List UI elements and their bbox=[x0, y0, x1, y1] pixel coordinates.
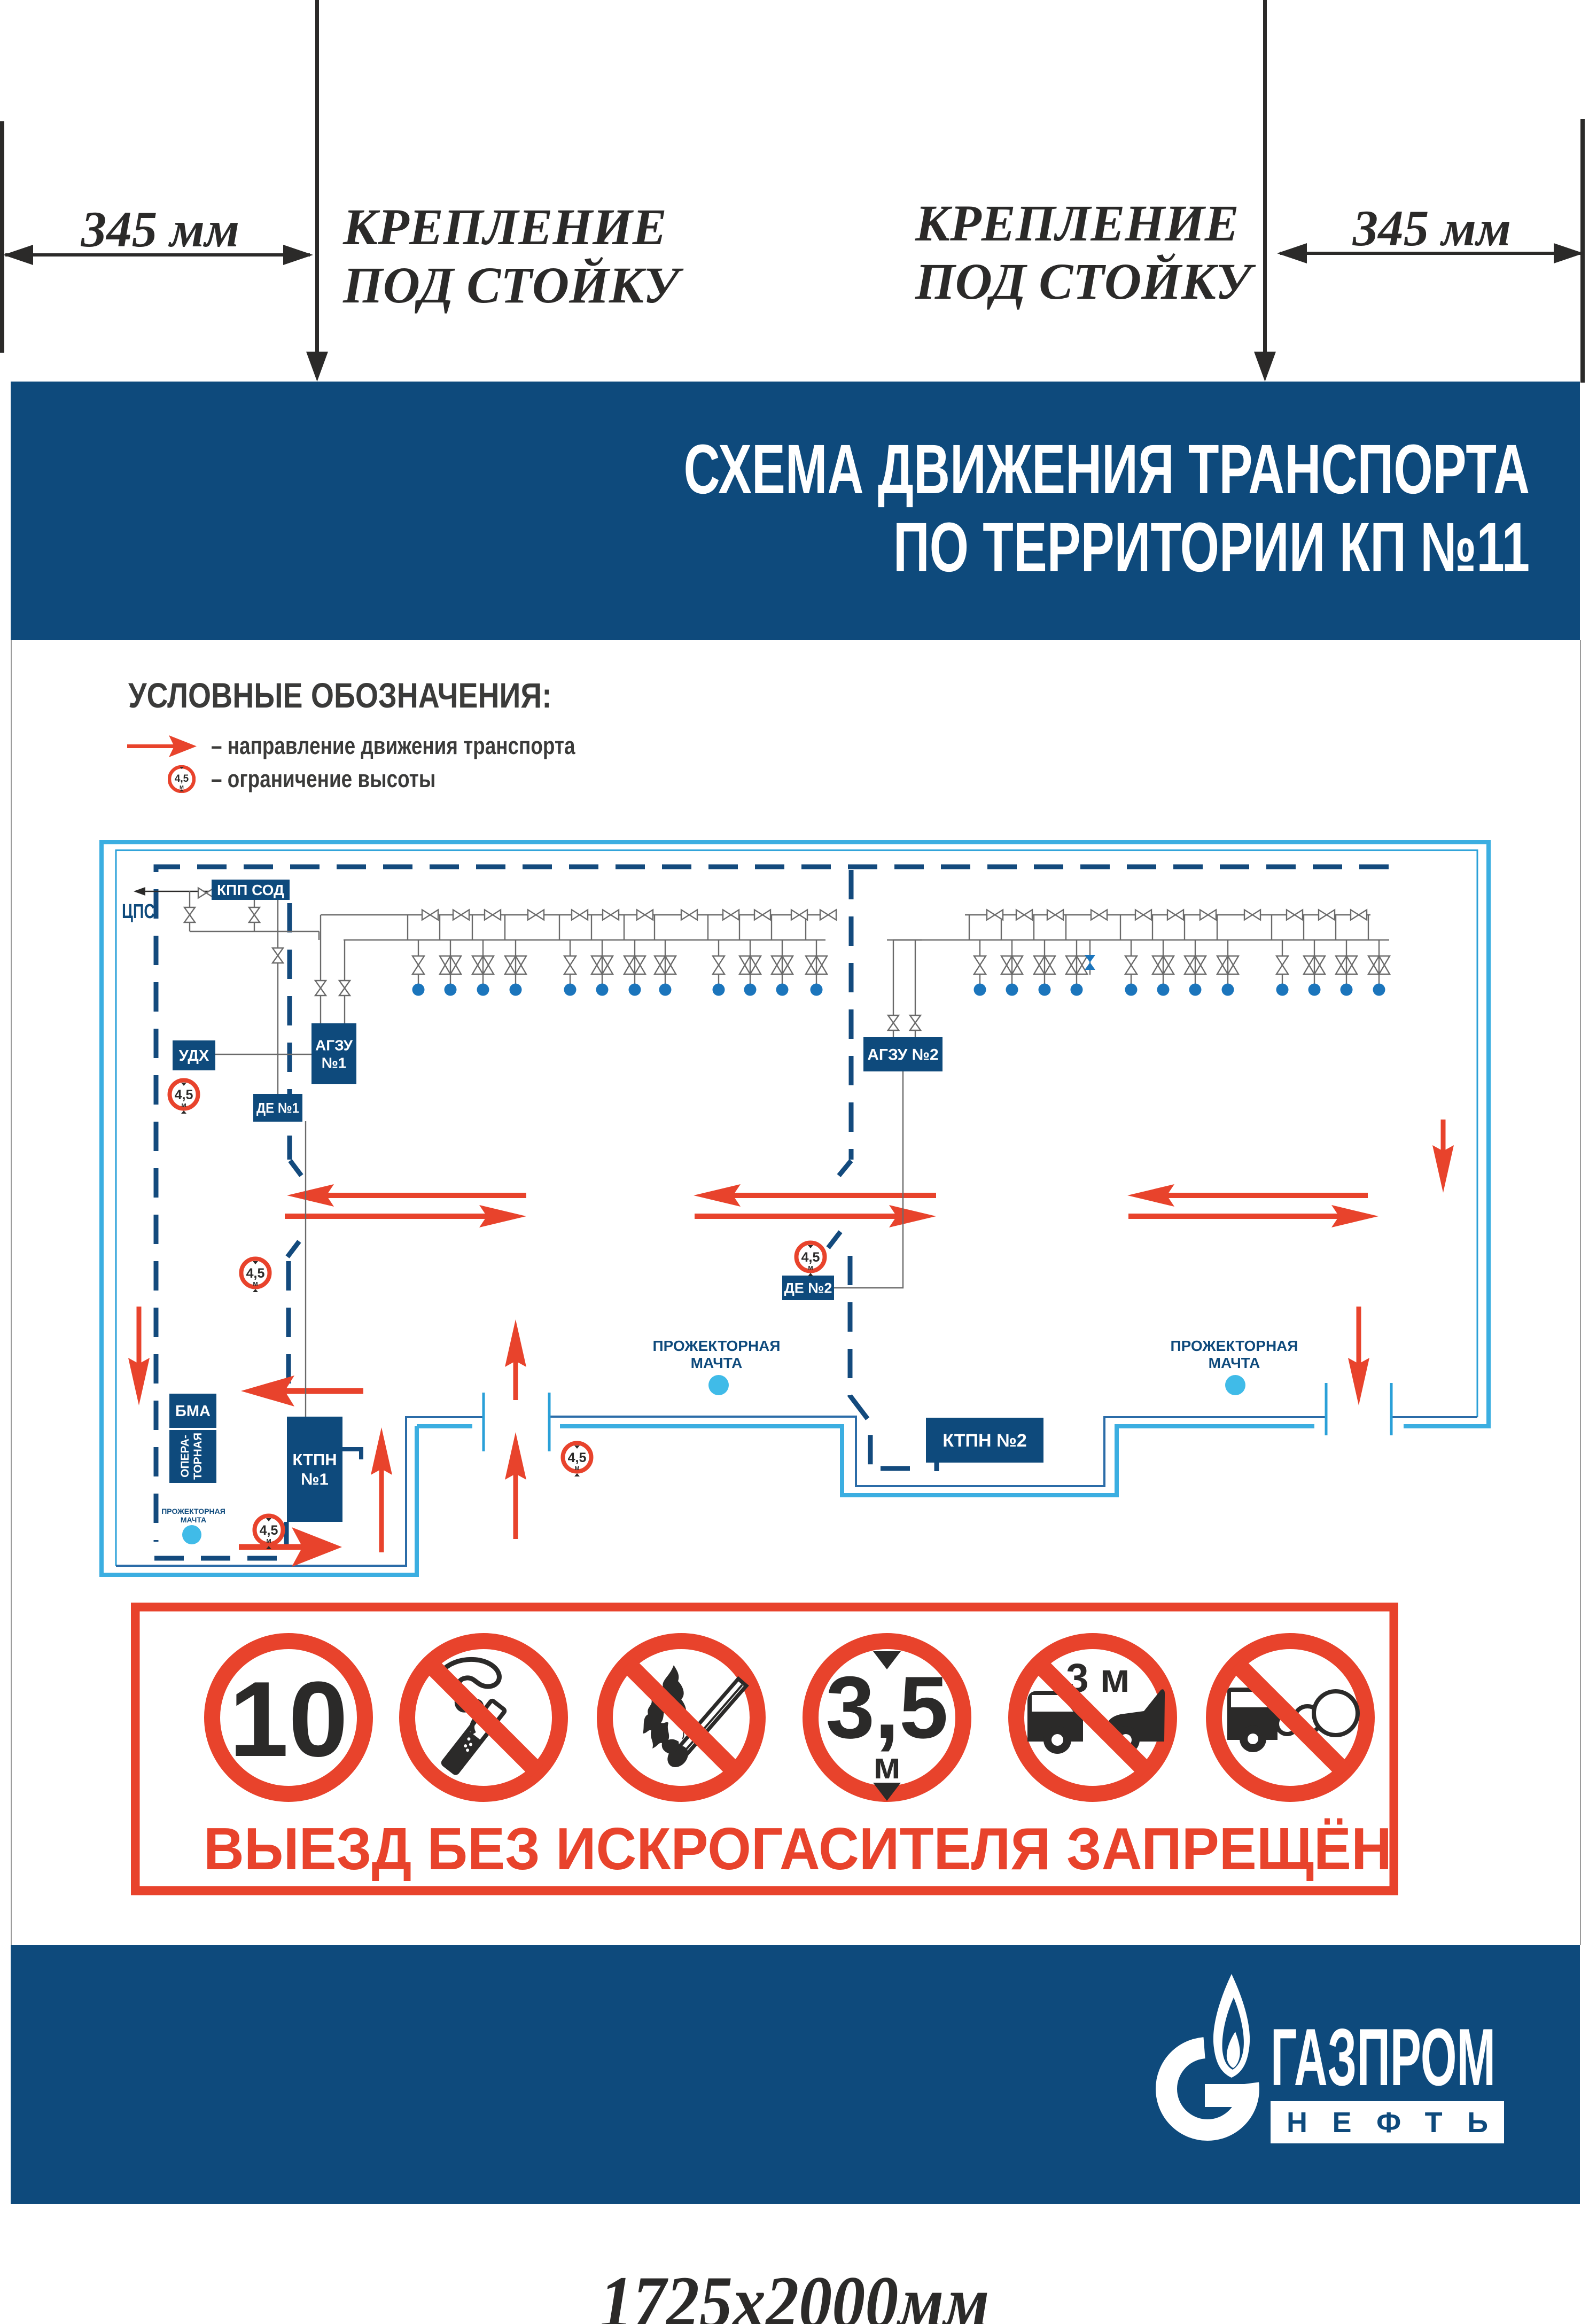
svg-text:м: м bbox=[808, 1263, 813, 1271]
svg-text:МАЧТА: МАЧТА bbox=[181, 1515, 206, 1524]
svg-text:КПП СОД: КПП СОД bbox=[217, 882, 284, 898]
svg-text:КТПН №2: КТПН №2 bbox=[943, 1431, 1027, 1451]
svg-text:МАЧТА: МАЧТА bbox=[691, 1355, 743, 1371]
svg-text:м: м bbox=[181, 1101, 186, 1109]
svg-text:ГАЗПРОМ: ГАЗПРОМ bbox=[1271, 2012, 1495, 2103]
svg-text:АГЗУ: АГЗУ bbox=[315, 1037, 353, 1053]
svg-text:4,5: 4,5 bbox=[246, 1266, 265, 1281]
svg-text:4,5: 4,5 bbox=[175, 773, 189, 784]
svg-text:м: м bbox=[574, 1464, 580, 1472]
svg-text:4,5: 4,5 bbox=[260, 1523, 278, 1538]
svg-text:ОПЕРА-: ОПЕРА- bbox=[179, 1435, 191, 1478]
svg-text:4,5: 4,5 bbox=[175, 1087, 193, 1102]
svg-text:ТОРНАЯ: ТОРНАЯ bbox=[192, 1433, 204, 1480]
svg-text:КТПН: КТПН bbox=[292, 1450, 337, 1469]
svg-text:4,5: 4,5 bbox=[568, 1450, 587, 1465]
svg-text:ПРОЖЕКТОРНАЯ: ПРОЖЕКТОРНАЯ bbox=[652, 1338, 780, 1354]
svg-text:3,5: 3,5 bbox=[825, 1658, 948, 1756]
svg-text:№1: №1 bbox=[322, 1054, 347, 1071]
svg-text:МАЧТА: МАЧТА bbox=[1209, 1355, 1260, 1371]
svg-text:ПРОЖЕКТОРНАЯ: ПРОЖЕКТОРНАЯ bbox=[161, 1507, 225, 1515]
svg-text:ВЫЕЗД БЕЗ ИСКРОГАСИТЕЛЯ ЗАПРЕЩ: ВЫЕЗД БЕЗ ИСКРОГАСИТЕЛЯ ЗАПРЕЩЁН bbox=[204, 1816, 1392, 1882]
svg-text:м: м bbox=[873, 1745, 901, 1786]
svg-text:ДЕ №1: ДЕ №1 bbox=[256, 1100, 299, 1116]
svg-text:ПРОЖЕКТОРНАЯ: ПРОЖЕКТОРНАЯ bbox=[1170, 1338, 1298, 1354]
svg-text:АГЗУ №2: АГЗУ №2 bbox=[867, 1046, 938, 1064]
svg-text:м: м bbox=[253, 1279, 258, 1287]
svg-text:4,5: 4,5 bbox=[801, 1250, 820, 1265]
svg-text:м: м bbox=[266, 1536, 271, 1544]
svg-text:ЦПС: ЦПС bbox=[122, 900, 155, 923]
svg-text:УДХ: УДХ bbox=[179, 1047, 209, 1064]
svg-text:БМА: БМА bbox=[175, 1403, 211, 1420]
svg-text:10: 10 bbox=[229, 1660, 348, 1779]
svg-text:ДЕ №2: ДЕ №2 bbox=[784, 1280, 832, 1296]
svg-text:№1: №1 bbox=[301, 1470, 329, 1489]
